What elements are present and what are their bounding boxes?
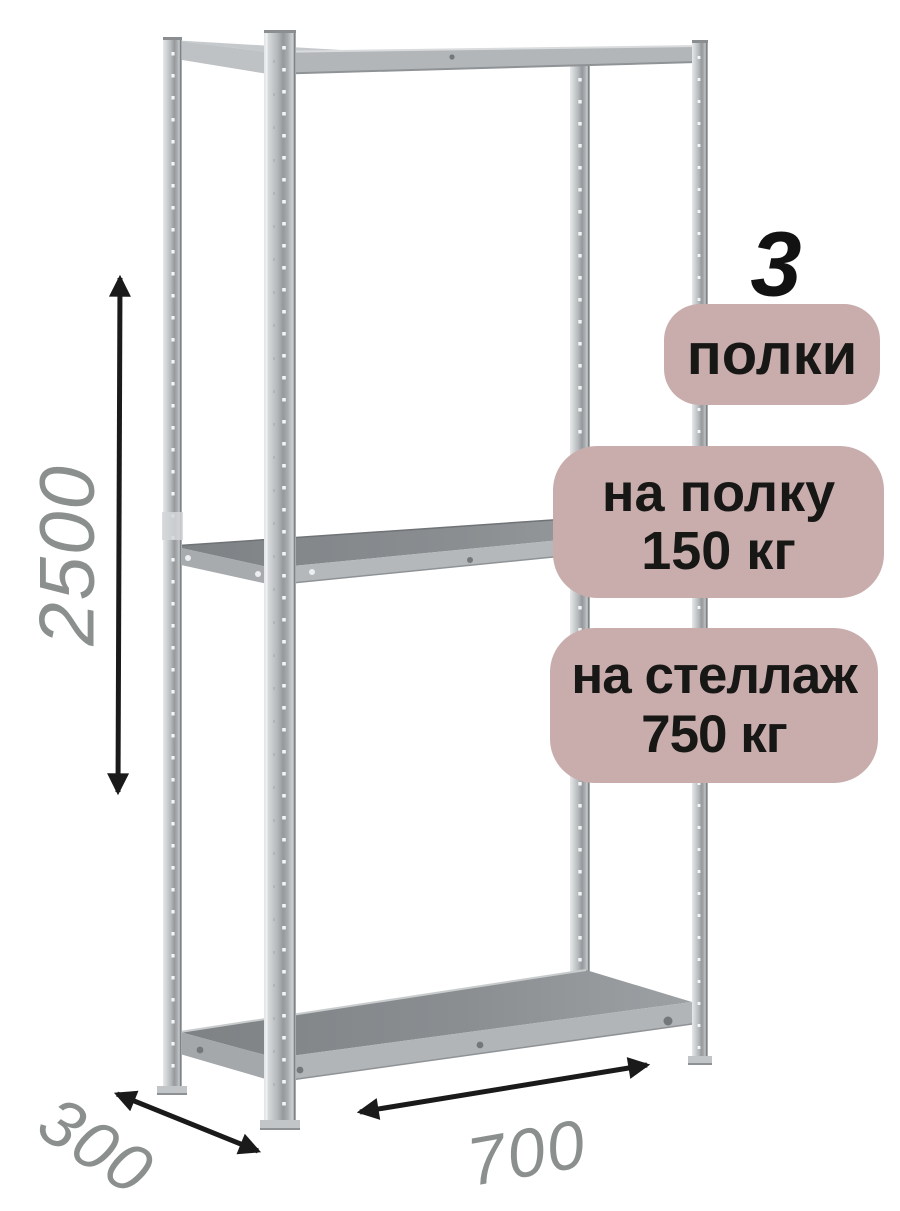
rack-bottom-shelf [180, 970, 692, 1082]
rack-post-front-left [260, 30, 300, 1129]
shelving-rack-illustration [0, 0, 900, 1200]
per-shelf-load-badge: на полку 150 кг [553, 446, 884, 598]
rack-top-shelf [170, 40, 697, 74]
shelf-count-badge: полки [664, 304, 880, 405]
height-dimension-label: 2500 [22, 464, 113, 646]
rack-post-back-left [157, 37, 187, 1094]
per-rack-load-badge: на стеллаж 750 кг [550, 628, 878, 783]
shelf-count-badge-label: полки [687, 321, 858, 388]
width-dimension-arrow [360, 1065, 647, 1112]
per-rack-load-line2: 750 кг [641, 706, 787, 764]
shelf-count-number: 3 [750, 213, 801, 318]
height-dimension-arrow [118, 278, 120, 792]
per-shelf-load-line1: на полку [602, 464, 835, 522]
per-rack-load-line1: на стеллаж [571, 647, 857, 705]
per-shelf-load-line2: 150 кг [641, 522, 796, 580]
